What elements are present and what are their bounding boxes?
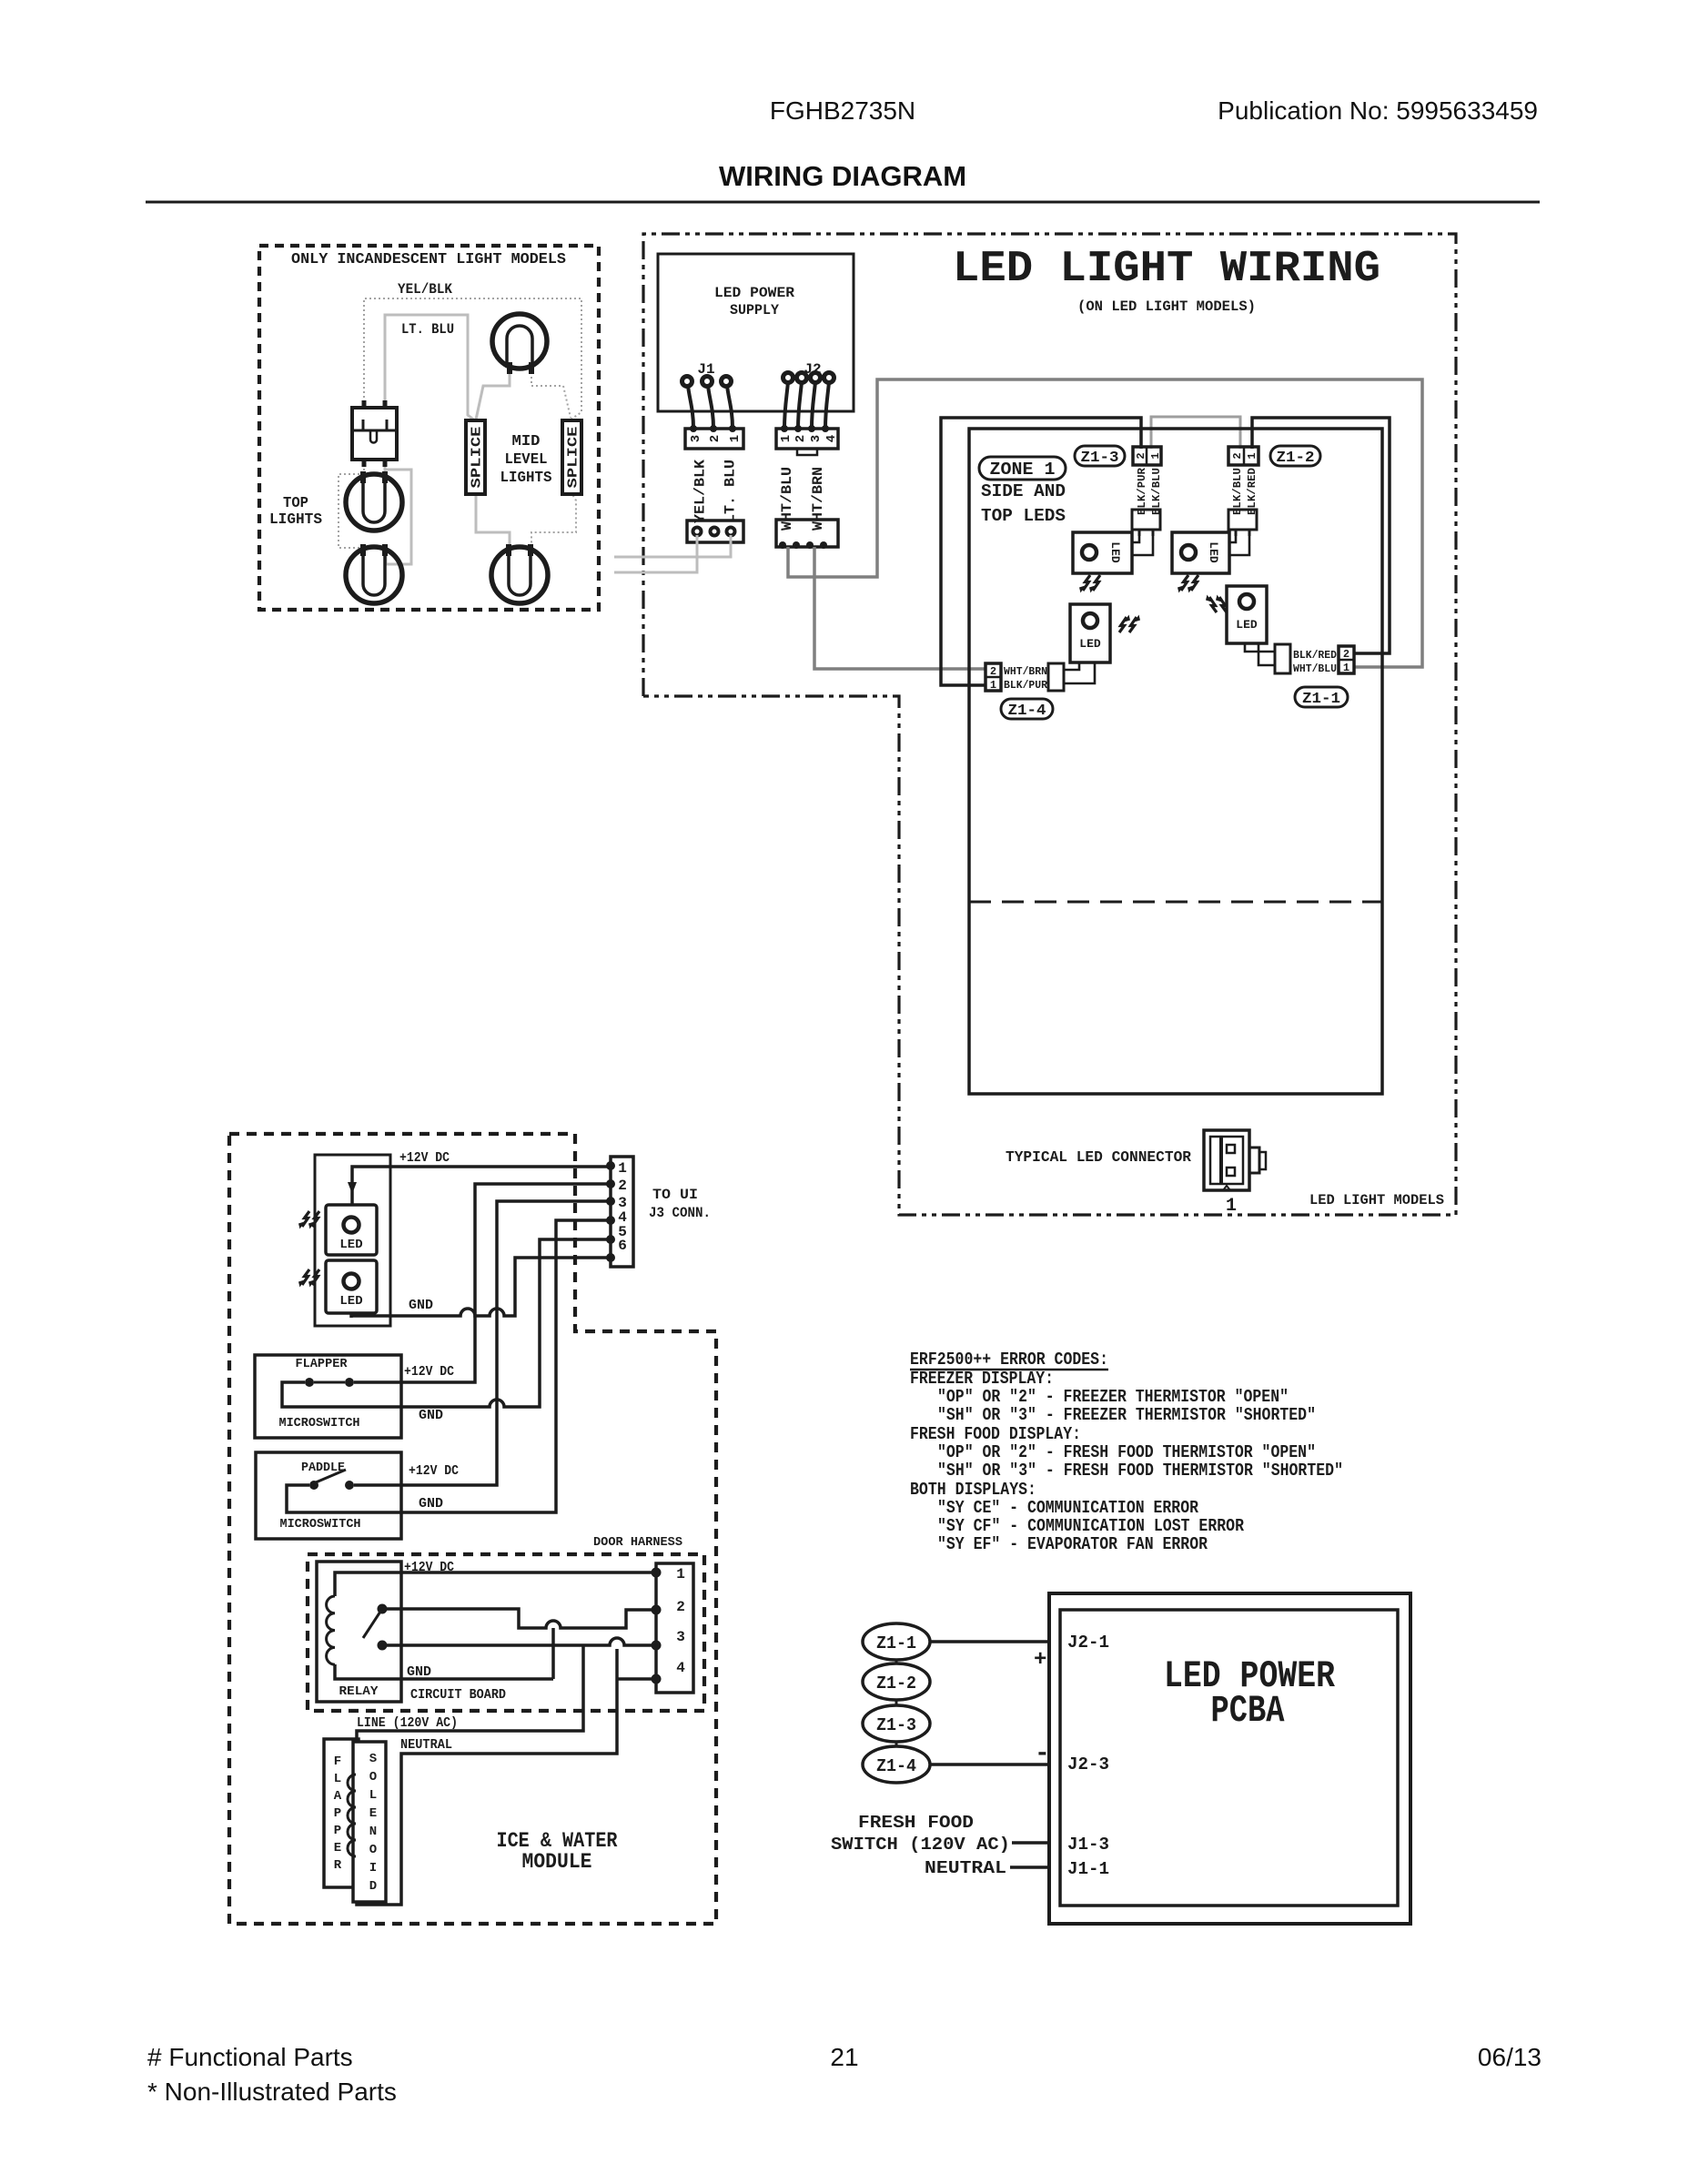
svg-text:1: 1 — [618, 1160, 627, 1177]
svg-text:R: R — [334, 1858, 342, 1873]
svg-text:Z1-4: Z1-4 — [876, 1756, 916, 1776]
svg-text:3: 3 — [809, 435, 824, 442]
svg-text:Z1-4: Z1-4 — [1008, 703, 1046, 720]
svg-text:WHT/BRN: WHT/BRN — [1004, 665, 1047, 678]
svg-text:LED: LED — [1207, 541, 1220, 563]
svg-text:(ON LED LIGHT MODELS): (ON LED LIGHT MODELS) — [1077, 298, 1256, 315]
svg-text:"OP" OR "2" - FREEZER THERMIST: "OP" OR "2" - FREEZER THERMISTOR "OPEN" — [937, 1387, 1289, 1407]
svg-text:WHT/BLU: WHT/BLU — [1293, 662, 1337, 675]
svg-text:LT. BLU: LT. BLU — [401, 321, 454, 338]
svg-text:BLK/RED: BLK/RED — [1246, 468, 1258, 515]
svg-text:1: 1 — [1226, 1196, 1237, 1217]
svg-text:Publication No: 5995633459: Publication No: 5995633459 — [1218, 96, 1538, 125]
svg-text:1: 1 — [676, 1566, 685, 1582]
svg-text:+12V DC: +12V DC — [409, 1463, 459, 1479]
svg-text:J2-3: J2-3 — [1067, 1754, 1109, 1774]
svg-text:LED LIGHT WIRING: LED LIGHT WIRING — [953, 245, 1380, 294]
svg-text:BLK/PUR: BLK/PUR — [1136, 467, 1148, 515]
svg-text:LED: LED — [1079, 637, 1101, 651]
svg-text:NEUTRAL: NEUTRAL — [925, 1858, 1006, 1878]
svg-text:LT. BLU: LT. BLU — [723, 460, 739, 523]
svg-text:-: - — [1035, 1740, 1050, 1768]
svg-text:Z1-3: Z1-3 — [876, 1715, 916, 1735]
svg-text:L: L — [369, 1788, 377, 1803]
svg-text:"SH" OR "3" - FREEZER THERMIST: "SH" OR "3" - FREEZER THERMISTOR "SHORTE… — [937, 1405, 1316, 1425]
svg-text:L: L — [334, 1772, 341, 1786]
svg-text:MICROSWITCH: MICROSWITCH — [279, 1416, 360, 1431]
svg-text:FRESH FOOD DISPLAY:: FRESH FOOD DISPLAY: — [910, 1424, 1081, 1444]
svg-text:Z1-2: Z1-2 — [876, 1673, 916, 1694]
svg-text:LED LIGHT MODELS: LED LIGHT MODELS — [1309, 1192, 1444, 1208]
svg-text:21: 21 — [830, 2043, 858, 2071]
svg-text:SWITCH (120V AC): SWITCH (120V AC) — [831, 1835, 1010, 1855]
svg-text:YEL/BLK: YEL/BLK — [692, 460, 709, 523]
svg-text:1: 1 — [779, 435, 793, 442]
svg-text:4: 4 — [676, 1660, 685, 1676]
svg-text:"SH" OR "3" - FRESH FOOD THERM: "SH" OR "3" - FRESH FOOD THERMISTOR "SHO… — [937, 1461, 1343, 1481]
svg-text:3: 3 — [689, 435, 703, 442]
svg-text:A: A — [334, 1789, 342, 1804]
svg-text:LINE (120V AC): LINE (120V AC) — [357, 1715, 458, 1731]
svg-text:F: F — [334, 1754, 341, 1769]
svg-text:Z1-2: Z1-2 — [1277, 450, 1315, 467]
svg-text:2: 2 — [708, 435, 723, 442]
svg-text:J1-1: J1-1 — [1067, 1859, 1109, 1879]
svg-text:J3 CONN.: J3 CONN. — [649, 1205, 711, 1221]
svg-text:BLK/RED: BLK/RED — [1293, 649, 1337, 662]
svg-text:BLK/BLU: BLK/BLU — [1150, 468, 1163, 515]
svg-text:* Non-Illustrated Parts: * Non-Illustrated Parts — [147, 2078, 397, 2106]
svg-text:CIRCUIT BOARD: CIRCUIT BOARD — [410, 1687, 506, 1703]
svg-text:1: 1 — [1246, 452, 1258, 459]
svg-text:GND: GND — [419, 1496, 443, 1512]
svg-text:ZONE 1: ZONE 1 — [990, 460, 1056, 480]
svg-text:+: + — [1034, 1648, 1046, 1673]
svg-text:SPLICE: SPLICE — [470, 427, 485, 489]
svg-text:O: O — [369, 1770, 377, 1785]
svg-text:FRESH FOOD: FRESH FOOD — [858, 1813, 974, 1833]
svg-text:2: 2 — [1135, 452, 1147, 459]
svg-text:J2-1: J2-1 — [1067, 1633, 1109, 1653]
svg-text:+12V DC: +12V DC — [399, 1150, 450, 1166]
svg-text:YEL/BLK: YEL/BLK — [398, 281, 452, 298]
svg-text:LED: LED — [339, 1294, 362, 1309]
svg-text:O: O — [369, 1843, 377, 1857]
svg-text:"SY CE" - COMMUNICATION ERROR: "SY CE" - COMMUNICATION ERROR — [937, 1498, 1199, 1518]
svg-text:+12V DC: +12V DC — [404, 1560, 454, 1575]
svg-text:ONLY INCANDESCENT LIGHT MODELS: ONLY INCANDESCENT LIGHT MODELS — [291, 251, 566, 268]
svg-text:ERF2500++ ERROR CODES:: ERF2500++ ERROR CODES: — [910, 1350, 1108, 1370]
svg-text:1: 1 — [990, 679, 996, 692]
svg-text:I: I — [369, 1861, 377, 1876]
svg-text:# Functional Parts: # Functional Parts — [147, 2043, 353, 2071]
svg-text:"SY CF" - COMMUNICATION LOST E: "SY CF" - COMMUNICATION LOST ERROR — [937, 1516, 1245, 1536]
svg-text:WIRING DIAGRAM: WIRING DIAGRAM — [719, 160, 966, 192]
svg-text:D: D — [369, 1879, 377, 1894]
svg-text:LIGHTS: LIGHTS — [500, 470, 552, 487]
svg-text:2: 2 — [990, 665, 996, 678]
svg-text:MODULE: MODULE — [522, 1850, 592, 1874]
svg-text:Z1-3: Z1-3 — [1081, 450, 1119, 467]
svg-text:TYPICAL LED CONNECTOR: TYPICAL LED CONNECTOR — [1006, 1148, 1191, 1166]
svg-text:P: P — [334, 1806, 341, 1821]
svg-text:S: S — [369, 1752, 377, 1766]
svg-text:MICROSWITCH: MICROSWITCH — [280, 1517, 361, 1532]
svg-text:BLK/PUR: BLK/PUR — [1004, 679, 1048, 692]
svg-text:Z1-1: Z1-1 — [876, 1633, 916, 1653]
svg-text:1: 1 — [728, 435, 743, 442]
svg-text:MID: MID — [512, 433, 541, 450]
svg-text:RELAY: RELAY — [339, 1684, 379, 1699]
svg-text:TOP LEDS: TOP LEDS — [981, 506, 1066, 526]
svg-text:FGHB2735N: FGHB2735N — [770, 96, 915, 125]
svg-text:N: N — [369, 1825, 377, 1839]
svg-text:GND: GND — [407, 1664, 431, 1680]
svg-text:LED: LED — [1236, 618, 1258, 632]
svg-text:GND: GND — [409, 1298, 433, 1313]
svg-text:SIDE AND: SIDE AND — [981, 481, 1066, 501]
svg-text:FREEZER DISPLAY:: FREEZER DISPLAY: — [910, 1369, 1054, 1389]
svg-text:3: 3 — [676, 1629, 685, 1645]
svg-text:LED: LED — [1108, 541, 1122, 563]
svg-text:E: E — [369, 1806, 377, 1821]
svg-text:SPLICE: SPLICE — [566, 427, 581, 489]
svg-text:2: 2 — [1343, 648, 1349, 661]
svg-text:DOOR HARNESS: DOOR HARNESS — [593, 1535, 682, 1550]
svg-text:SUPPLY: SUPPLY — [730, 302, 779, 318]
svg-text:J1-3: J1-3 — [1067, 1835, 1109, 1855]
svg-text:4: 4 — [824, 435, 839, 442]
svg-text:2: 2 — [1231, 452, 1244, 459]
svg-text:1: 1 — [1149, 452, 1162, 459]
svg-text:NEUTRAL: NEUTRAL — [400, 1737, 452, 1753]
svg-text:P: P — [334, 1824, 341, 1838]
svg-text:2: 2 — [618, 1178, 627, 1194]
svg-text:PCBA: PCBA — [1211, 1689, 1286, 1733]
svg-text:"OP" OR "2" - FRESH FOOD THERM: "OP" OR "2" - FRESH FOOD THERMISTOR "OPE… — [937, 1442, 1316, 1462]
svg-text:E: E — [334, 1841, 341, 1855]
svg-text:FLAPPER: FLAPPER — [296, 1357, 349, 1371]
svg-text:6: 6 — [618, 1238, 627, 1254]
svg-text:2: 2 — [676, 1599, 685, 1615]
svg-text:06/13: 06/13 — [1478, 2043, 1541, 2071]
svg-text:TOP: TOP — [283, 495, 308, 512]
svg-text:LIGHTS: LIGHTS — [269, 511, 322, 529]
svg-text:2: 2 — [793, 435, 808, 442]
svg-text:1: 1 — [1343, 662, 1349, 674]
svg-text:"SY EF" - EVAPORATOR FAN ERROR: "SY EF" - EVAPORATOR FAN ERROR — [937, 1534, 1208, 1554]
svg-text:LED: LED — [339, 1238, 362, 1252]
svg-text:LED POWER: LED POWER — [714, 285, 794, 301]
svg-text:BLK/BLU: BLK/BLU — [1231, 468, 1244, 515]
svg-text:GND: GND — [419, 1408, 443, 1423]
svg-text:Z1-1: Z1-1 — [1302, 691, 1340, 708]
svg-text:BOTH DISPLAYS:: BOTH DISPLAYS: — [910, 1480, 1036, 1500]
svg-text:TO UI: TO UI — [652, 1187, 698, 1203]
svg-text:LEVEL: LEVEL — [505, 451, 548, 469]
svg-text:+12V DC: +12V DC — [404, 1364, 454, 1380]
